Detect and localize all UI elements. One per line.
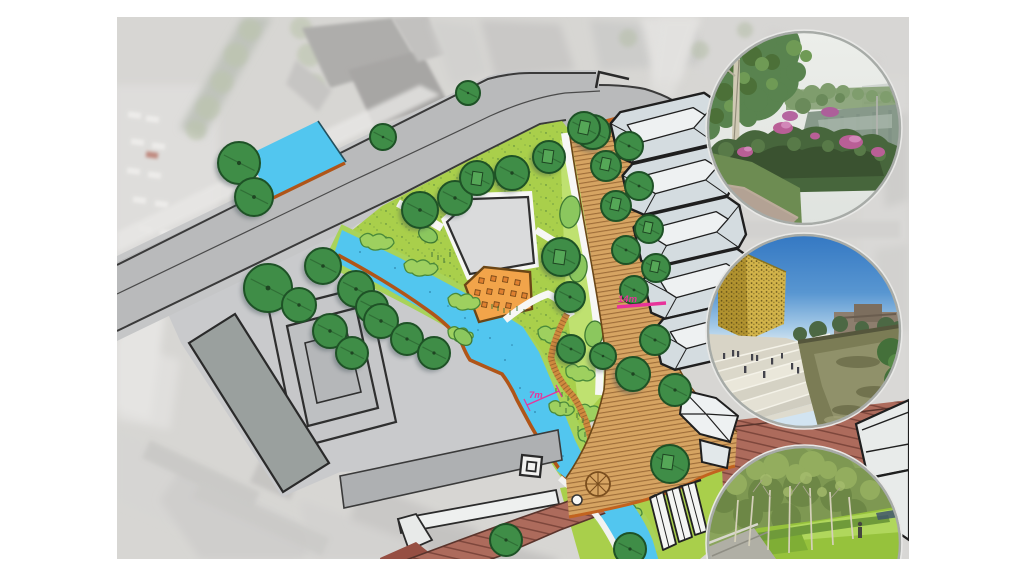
svg-text:14m: 14m [618, 294, 638, 305]
